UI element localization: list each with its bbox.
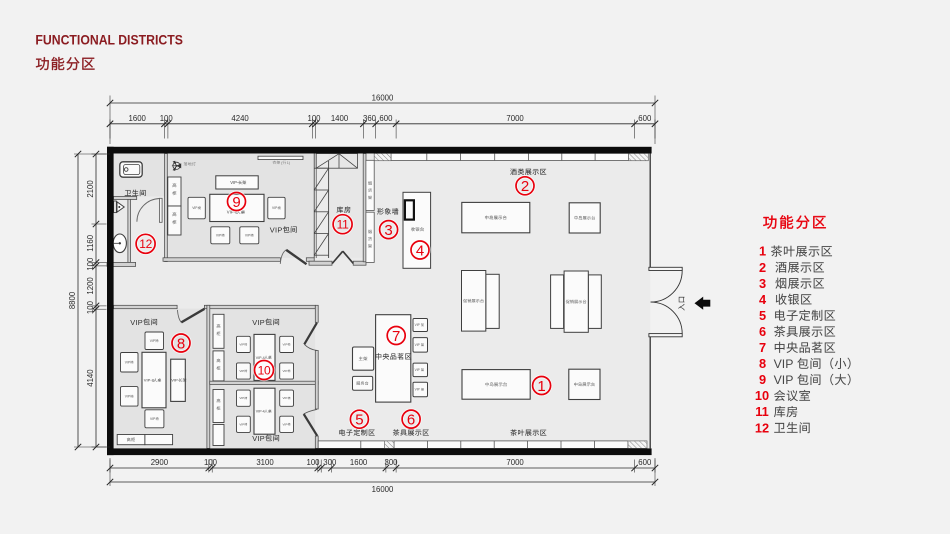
svg-text:8800: 8800 bbox=[68, 291, 77, 309]
svg-text:3100: 3100 bbox=[256, 458, 274, 467]
svg-text:300: 300 bbox=[384, 458, 398, 467]
svg-text:2: 2 bbox=[759, 260, 766, 275]
svg-text:VIP-4: VIP-4 bbox=[256, 410, 265, 414]
svg-text:VIP: VIP bbox=[150, 417, 156, 421]
svg-text:11: 11 bbox=[337, 217, 349, 231]
svg-text:2100: 2100 bbox=[86, 180, 95, 198]
svg-text:VIP: VIP bbox=[270, 225, 283, 234]
svg-text:VIP: VIP bbox=[239, 422, 244, 426]
svg-text:VIP: VIP bbox=[252, 318, 265, 327]
svg-text:4: 4 bbox=[416, 242, 424, 259]
svg-text:1: 1 bbox=[537, 378, 545, 395]
svg-text:4140: 4140 bbox=[86, 369, 95, 387]
svg-text:VIP: VIP bbox=[415, 343, 420, 347]
svg-text:VIP-: VIP- bbox=[171, 378, 179, 383]
svg-text:600: 600 bbox=[638, 114, 652, 123]
svg-text:7: 7 bbox=[392, 328, 400, 345]
svg-text:1600: 1600 bbox=[350, 458, 368, 467]
svg-text:8: 8 bbox=[177, 335, 185, 352]
svg-text:VIP: VIP bbox=[415, 323, 420, 327]
svg-text:6: 6 bbox=[407, 411, 415, 428]
svg-text:FUNCTIONAL DISTRICTS: FUNCTIONAL DISTRICTS bbox=[35, 32, 183, 47]
svg-text:300: 300 bbox=[323, 458, 337, 467]
svg-text:VIP: VIP bbox=[125, 360, 131, 364]
svg-text:VIP: VIP bbox=[245, 233, 251, 237]
svg-text:100: 100 bbox=[160, 114, 174, 123]
svg-text:5: 5 bbox=[759, 308, 766, 323]
svg-text:VIP: VIP bbox=[239, 396, 244, 400]
svg-text:16000: 16000 bbox=[372, 485, 394, 494]
svg-text:12: 12 bbox=[139, 237, 152, 251]
svg-text:VIP-: VIP- bbox=[230, 180, 239, 185]
svg-text:VIP: VIP bbox=[774, 357, 794, 371]
svg-text:10: 10 bbox=[258, 363, 271, 377]
svg-text:VIP-8: VIP-8 bbox=[144, 378, 155, 383]
svg-text:VIP: VIP bbox=[283, 422, 288, 426]
svg-text:12: 12 bbox=[755, 420, 769, 435]
svg-text:6: 6 bbox=[759, 324, 766, 339]
svg-text:11: 11 bbox=[755, 404, 769, 419]
svg-text:100: 100 bbox=[86, 257, 95, 271]
svg-text:VIP: VIP bbox=[216, 233, 222, 237]
svg-text:1160: 1160 bbox=[86, 234, 95, 251]
svg-text:1200: 1200 bbox=[86, 277, 95, 295]
svg-text:3: 3 bbox=[759, 276, 766, 291]
svg-text:7000: 7000 bbox=[506, 458, 524, 467]
svg-text:VIP: VIP bbox=[239, 342, 244, 346]
svg-text:10: 10 bbox=[755, 388, 769, 403]
svg-text:100: 100 bbox=[86, 300, 95, 314]
svg-text:VIP: VIP bbox=[415, 368, 420, 372]
svg-text:VIP: VIP bbox=[130, 318, 143, 327]
svg-text:4240: 4240 bbox=[231, 114, 249, 123]
svg-text:VIP: VIP bbox=[239, 369, 244, 373]
svg-text:VIP: VIP bbox=[415, 388, 420, 392]
svg-text:9: 9 bbox=[759, 372, 766, 387]
svg-text:9: 9 bbox=[232, 194, 240, 211]
svg-text:4: 4 bbox=[759, 292, 767, 307]
svg-text:VIP: VIP bbox=[283, 342, 288, 346]
svg-text:VIP: VIP bbox=[150, 339, 156, 343]
svg-text:VIP: VIP bbox=[774, 373, 794, 387]
svg-text:VIP: VIP bbox=[252, 434, 265, 443]
svg-text:8: 8 bbox=[759, 356, 766, 371]
svg-text:360: 360 bbox=[363, 114, 377, 123]
svg-text:VIP: VIP bbox=[283, 369, 288, 373]
svg-text:1400: 1400 bbox=[331, 114, 349, 123]
svg-text:600: 600 bbox=[638, 458, 652, 467]
svg-text:VIP: VIP bbox=[283, 396, 288, 400]
svg-text:16000: 16000 bbox=[372, 93, 394, 102]
svg-text:VIP: VIP bbox=[272, 206, 278, 210]
svg-text:VIP: VIP bbox=[125, 394, 131, 398]
svg-text:100: 100 bbox=[204, 458, 218, 467]
svg-text:1600: 1600 bbox=[129, 114, 147, 123]
svg-text:2: 2 bbox=[521, 178, 529, 195]
svg-text:100: 100 bbox=[306, 458, 320, 467]
svg-text:2900: 2900 bbox=[151, 458, 169, 467]
svg-text:1: 1 bbox=[759, 244, 766, 259]
svg-text:100: 100 bbox=[307, 114, 321, 123]
svg-text:7000: 7000 bbox=[506, 114, 524, 123]
svg-text:7: 7 bbox=[759, 340, 766, 355]
svg-text:600: 600 bbox=[379, 114, 393, 123]
svg-text:VIP: VIP bbox=[192, 206, 198, 210]
svg-text:5: 5 bbox=[355, 412, 363, 429]
svg-text:3: 3 bbox=[384, 222, 392, 239]
